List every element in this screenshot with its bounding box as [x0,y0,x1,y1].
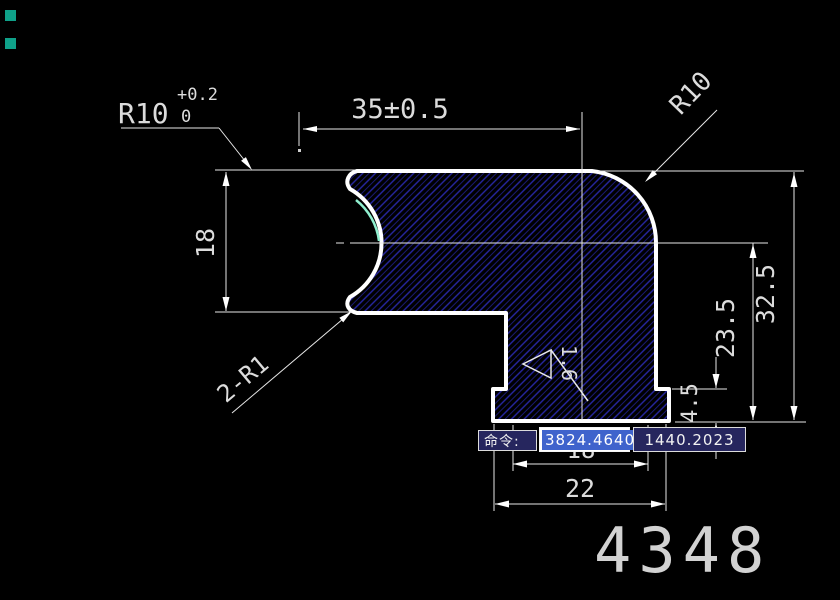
command-prompt-text: 命令: [484,431,520,451]
arrowhead [566,126,580,132]
dim-45-text: 4.5 [678,383,703,423]
dim-22-text: 22 [565,474,595,503]
dim-r10tl-tol-plus: +0.2 [177,85,218,105]
part-number-text: 4348 [594,514,834,587]
dim-r10tr-text: R10 [664,66,718,121]
roughness-value: 1.6 [557,345,581,381]
dim-18-text: 18 [191,228,220,258]
arrowhead [713,374,720,388]
command-prompt-label: 命令: [478,430,537,451]
arrowhead [750,244,757,258]
dynamic-input-y-value[interactable]: 1440.2023 [644,431,734,449]
arrowhead [241,157,252,170]
arrowhead [651,501,665,508]
dim-r10tr-leader [647,110,717,180]
arrowhead [303,126,317,132]
technical-drawing: 35±0.5 R10 +0.2 0 18 2-R1 R10 23.5 [0,0,840,600]
dim-r10tl-text: R10 [118,97,169,130]
dynamic-input-x-field[interactable]: 3824.4640 [539,427,630,452]
dim-r10tl-tol-minus: 0 [181,107,191,127]
arrowhead [495,501,509,508]
dim-35-text: 35±0.5 [351,94,449,125]
arrowhead [791,173,798,187]
dim-325-text: 32.5 [751,264,780,324]
cad-canvas[interactable]: 35±0.5 R10 +0.2 0 18 2-R1 R10 23.5 [0,0,840,600]
dynamic-input-y-field[interactable]: 1440.2023 [633,427,746,452]
part-profile [347,171,669,421]
arrowhead [223,297,230,311]
dim-235-text: 23.5 [711,298,740,358]
dynamic-input-x-value[interactable]: 3824.4640 [542,430,638,450]
arrowhead [791,406,798,420]
arrowhead [634,461,648,468]
arrowhead [513,461,527,468]
dim-35-extension-dot [298,149,301,152]
arrowhead [750,406,757,420]
arrowhead [223,172,230,186]
dim-2r1-text: 2-R1 [212,350,274,409]
